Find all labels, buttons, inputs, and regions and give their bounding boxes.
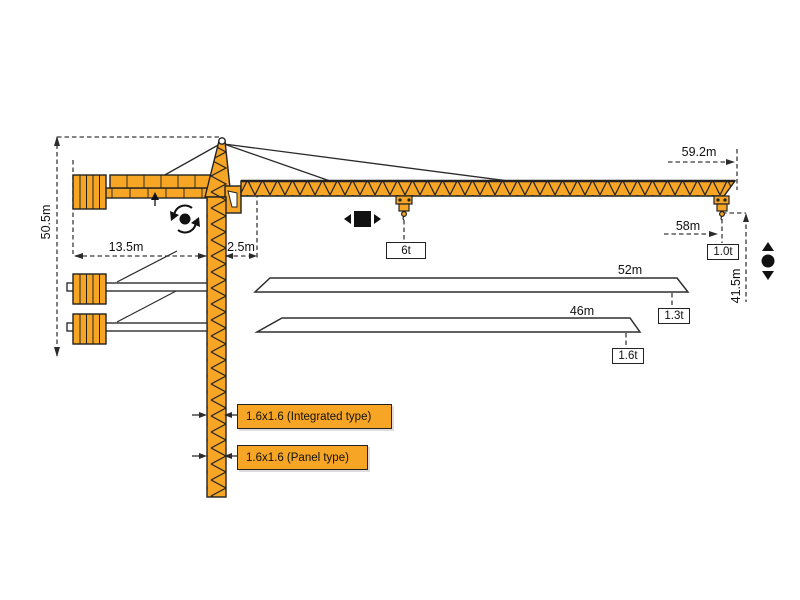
jib-option-52m-bar xyxy=(255,278,688,292)
load-badge-tip-59m: 1.0t xyxy=(707,244,739,260)
jib-option-46m-bar xyxy=(257,318,640,332)
mast-label-integrated: 1.6x1.6 (Integrated type) xyxy=(237,404,392,429)
load-badge-tip-52m: 1.3t xyxy=(658,308,690,324)
trolley-hook-tip xyxy=(714,196,729,220)
counterweight xyxy=(73,175,106,209)
slewing-icon xyxy=(170,205,200,232)
crane-diagram: 50.5m 13.5m 2.5m 59.2m 58m 41.5m 52m 46m… xyxy=(0,0,800,600)
mast-label-panel: 1.6x1.6 (Panel type) xyxy=(237,445,368,470)
dim-total-height-label: 50.5m xyxy=(39,200,53,244)
hoisting-icon xyxy=(762,242,775,280)
trolley-hook-mid xyxy=(396,196,412,220)
operator-cab xyxy=(225,186,241,213)
main-jib xyxy=(241,181,735,196)
load-badge-midspan: 6t xyxy=(386,242,426,259)
dim-hook-height-label: 41.5m xyxy=(729,264,743,308)
apex-pin xyxy=(219,138,225,144)
counterjib-option-2 xyxy=(67,314,207,344)
dim-counterjib-label: 13.5m xyxy=(101,240,151,254)
jib-option-46m-label: 46m xyxy=(557,304,607,318)
dim-rear-offset-label: 2.5m xyxy=(216,240,266,254)
counterjib-option-1 xyxy=(67,274,207,304)
crane-drawing xyxy=(0,0,800,600)
load-badge-tip-46m: 1.6t xyxy=(612,348,644,364)
dim-hook-radius-label: 58m xyxy=(663,219,713,233)
jib-option-52m-label: 52m xyxy=(605,263,655,277)
dim-max-radius-label: 59.2m xyxy=(674,145,724,159)
trolley-travel-icon xyxy=(344,211,381,227)
